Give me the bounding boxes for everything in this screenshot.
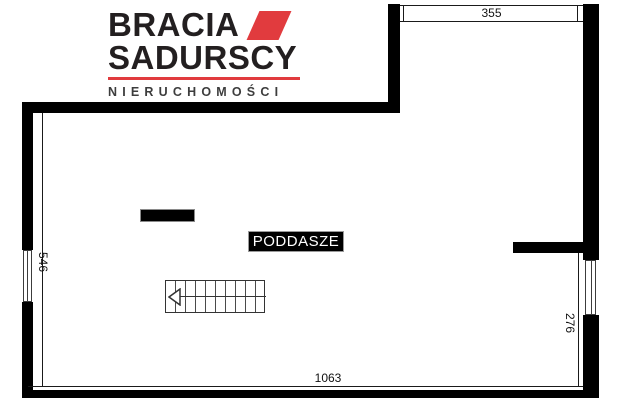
staircase bbox=[165, 280, 265, 313]
brand-underline bbox=[108, 77, 300, 80]
wall-right-upper bbox=[583, 4, 599, 255]
window-left-pane-line bbox=[27, 250, 28, 302]
window-right-pane-line bbox=[591, 260, 592, 315]
dimension-right: 276 bbox=[563, 311, 577, 335]
window-left bbox=[22, 246, 33, 306]
stair-direction-line bbox=[172, 296, 266, 297]
wall-divider-top bbox=[388, 4, 400, 113]
stair-direction-arrow-icon bbox=[168, 288, 182, 306]
dimension-line-right bbox=[578, 253, 579, 387]
wall-left-upper bbox=[22, 102, 33, 246]
floor-plan-canvas: BRACIA SADURSCY NIERUCHOMOŚCI bbox=[0, 0, 620, 400]
brand-logo: BRACIA SADURSCY NIERUCHOMOŚCI bbox=[108, 10, 308, 99]
wall-top-left-section bbox=[22, 102, 400, 113]
dimension-left: 546 bbox=[36, 250, 50, 274]
wall-left-lower bbox=[22, 306, 33, 398]
dimension-line-bottom bbox=[28, 386, 583, 387]
wall-right-lower bbox=[583, 320, 599, 398]
wall-stub-right bbox=[513, 242, 583, 253]
brand-name-line2: SADURSCY bbox=[108, 43, 308, 73]
brand-name-row: BRACIA bbox=[108, 10, 308, 40]
brand-name-line1: BRACIA bbox=[108, 10, 239, 40]
window-left-cap-bottom bbox=[22, 302, 33, 306]
window-right-cap-bottom bbox=[583, 315, 599, 320]
dimension-line-top bbox=[400, 21, 583, 22]
dimension-bottom: 1063 bbox=[100, 371, 556, 385]
wall-bottom bbox=[22, 390, 599, 398]
brand-accent-shape bbox=[247, 11, 292, 40]
wall-stub-interior bbox=[140, 209, 195, 222]
window-right bbox=[583, 255, 599, 320]
room-label: PODDASZE bbox=[248, 231, 344, 252]
brand-tagline: NIERUCHOMOŚCI bbox=[108, 85, 308, 99]
dimension-top: 355 bbox=[400, 6, 583, 20]
